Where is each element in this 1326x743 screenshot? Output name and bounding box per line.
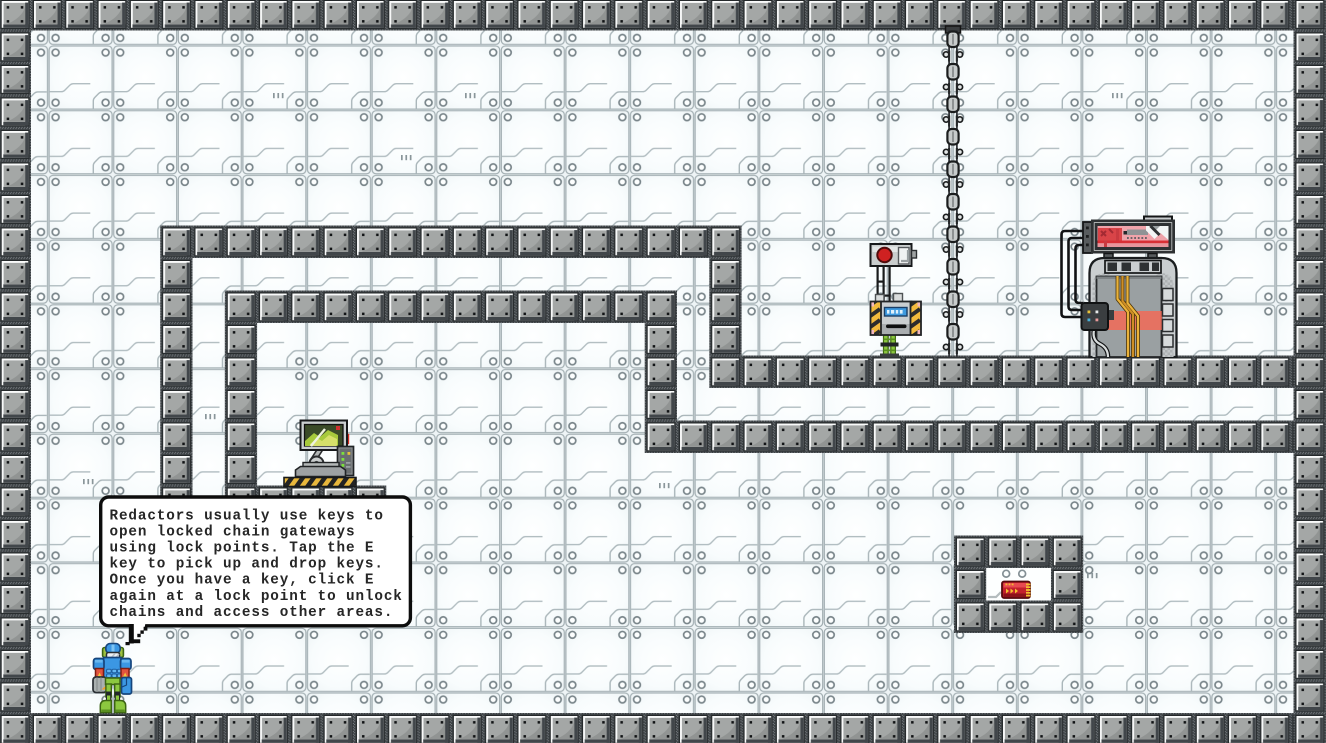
svg-text:Once you have a key, click E: Once you have a key, click E (110, 573, 375, 589)
svg-text:key to pick up and drop keys.: key to pick up and drop keys. (110, 557, 384, 573)
svg-text:using lock points. Tap the E: using lock points. Tap the E (110, 541, 375, 557)
svg-text:chains and access other areas.: chains and access other areas. (110, 605, 394, 621)
svg-text:open locked chain gateways: open locked chain gateways (110, 524, 356, 540)
svg-text:Redactors usually use keys to: Redactors usually use keys to (110, 508, 384, 524)
svg-text:again at a lock point to unloc: again at a lock point to unlock (110, 589, 403, 605)
